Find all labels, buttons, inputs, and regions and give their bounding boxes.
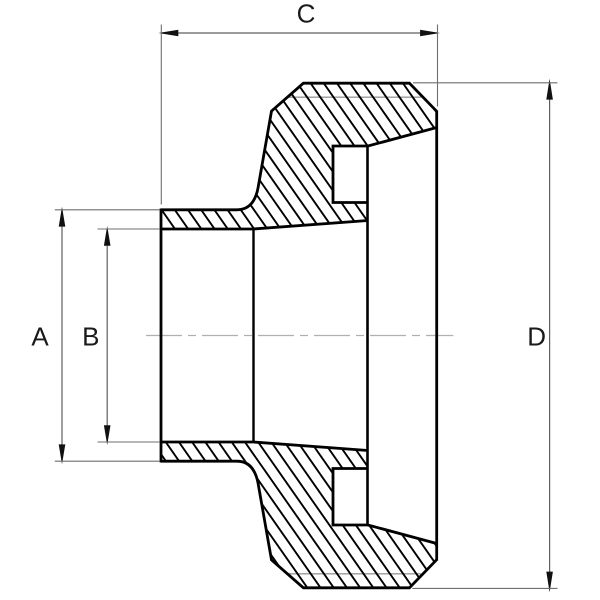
svg-text:C: C xyxy=(297,0,316,29)
svg-text:B: B xyxy=(82,321,99,351)
svg-text:A: A xyxy=(31,321,49,351)
svg-text:D: D xyxy=(527,321,546,351)
